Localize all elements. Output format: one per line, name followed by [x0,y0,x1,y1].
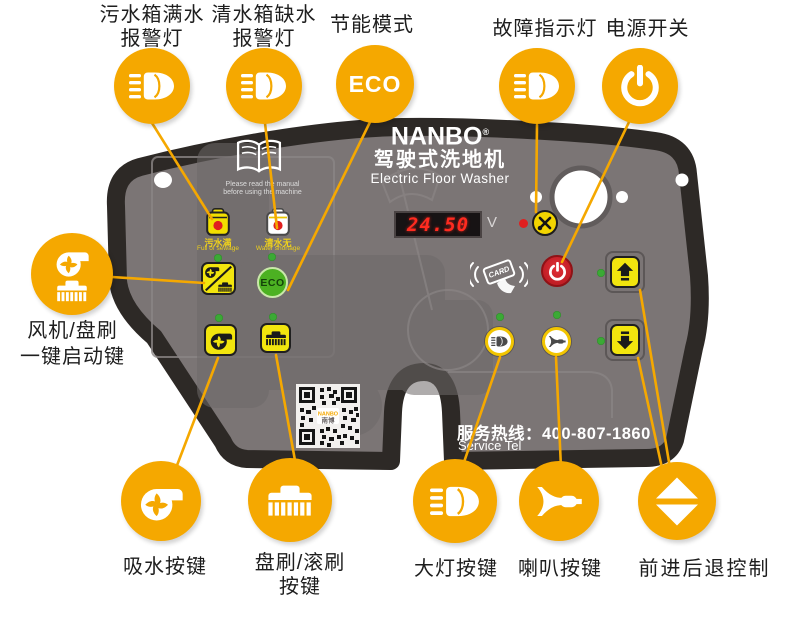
voltage-value: 24.50 [407,214,469,236]
callout-power-switch [602,48,678,124]
label-line: 吸水按键 [105,555,225,579]
power-button[interactable] [541,255,573,287]
headlight-icon [491,336,508,347]
label-line: 一键启动键 [5,344,140,370]
callout-horn-button [519,461,599,541]
battery-voltage-display: 24.50 [394,211,482,238]
brush-button[interactable] [260,323,291,353]
infographic-canvas: Please read the manual before using the … [0,0,790,623]
callout-headlight-button [413,459,497,543]
water-shortage-label-en: Water shortage [235,245,321,252]
voltage-unit: V [487,214,497,231]
headlight-button[interactable] [485,327,514,356]
label-line: 按键 [240,575,360,599]
power-icon [619,65,661,107]
fan-icon [53,247,91,277]
callout-eco-mode: ECO [336,45,414,123]
label-line: 盘刷/滚刷 [240,551,360,575]
callout-brush-button [248,458,332,542]
qr-code: NANBO 南博 [296,384,360,448]
horn-icon [548,336,566,347]
eco-mode-button[interactable]: ECO [257,267,288,298]
book-icon [233,139,285,177]
sewage-tank-icon [206,208,230,236]
label-line: 故障指示灯 [490,17,600,41]
callout-fault-indicator [499,48,575,124]
brand-logo-text: NANBO [391,122,483,150]
headlight-icon [514,71,560,101]
power-icon [548,262,567,281]
manual-notice-line1: Please read the manual [200,181,325,189]
led-indicator [268,253,276,261]
manual-notice-line2: before using the machine [200,189,325,197]
brand-block: NANBO® 驾驶式洗地机 Electric Floor Washer [350,119,530,186]
brand-logo: NANBO® [350,119,530,149]
fan-icon [138,482,184,521]
callout-label-eco-mode: 节能模式 [302,13,442,37]
product-title-cn: 驾驶式洗地机 [350,149,530,171]
led-indicator [553,311,561,319]
led-indicator [269,313,277,321]
brush-icon [265,330,287,346]
label-line: 大灯按键 [396,557,516,581]
label-line: 前进后退控制 [622,557,787,581]
callout-label-forward-backward: 前进后退控制 [622,557,787,581]
arrow-up-icon [616,262,634,282]
manual-notice: Please read the manual before using the … [200,181,325,197]
qr-brand-cn-text: 南博 [322,416,336,425]
eco-button-label: ECO [260,277,284,289]
callout-label-brush: 盘刷/滚刷 按键 [240,551,360,599]
brush-icon [54,279,90,302]
fault-led [519,219,528,228]
headlight-icon [129,71,175,101]
callout-label-fault-indicator: 故障指示灯 [490,17,600,41]
water-tank-icon [266,208,290,236]
fan-icon [209,330,233,350]
wrench-indicator-icon [532,210,558,236]
horn-icon [535,487,583,516]
headlight-icon [241,71,287,101]
led-indicator [597,269,605,277]
label-line: 电源开关 [600,17,695,41]
fan-brush-start-button[interactable] [201,262,236,295]
suction-button[interactable] [204,324,237,356]
callout-suction-button [121,461,201,541]
led-indicator [215,314,223,322]
callout-water-shortage-warning [226,48,302,124]
fan-brush-combo-icon [203,264,234,293]
card-swipe-icon: CARD [470,250,528,304]
label-line: 节能模式 [302,13,442,37]
service-tel-label: Service Tel [458,438,521,453]
led-indicator [496,313,504,321]
callout-forward-backward [638,462,716,540]
callout-label-fan-brush-start: 风机/盘刷 一键启动键 [5,318,140,370]
brush-icon [266,483,314,517]
registered-mark: ® [483,127,490,137]
led-indicator [597,337,605,345]
callout-label-power-switch: 电源开关 [600,17,695,41]
label-line: 喇叭按键 [500,557,620,581]
callout-sewage-full-warning [114,48,190,124]
callout-label-suction: 吸水按键 [105,555,225,579]
eco-badge-text: ECO [349,71,402,98]
headlight-icon [430,485,480,518]
led-indicator [214,254,222,262]
label-line: 风机/盘刷 [5,318,140,344]
forward-button[interactable] [610,256,640,288]
callout-fan-brush-start [31,233,113,315]
service-hotline-number: 400-807-1860 [542,425,651,443]
up-down-arrows-icon [653,476,701,527]
product-title-en: Electric Floor Washer [350,171,530,186]
horn-button[interactable] [542,327,571,356]
arrow-down-icon [616,330,634,350]
callout-label-horn: 喇叭按键 [500,557,620,581]
backward-button[interactable] [610,324,640,356]
callout-label-headlight: 大灯按键 [396,557,516,581]
